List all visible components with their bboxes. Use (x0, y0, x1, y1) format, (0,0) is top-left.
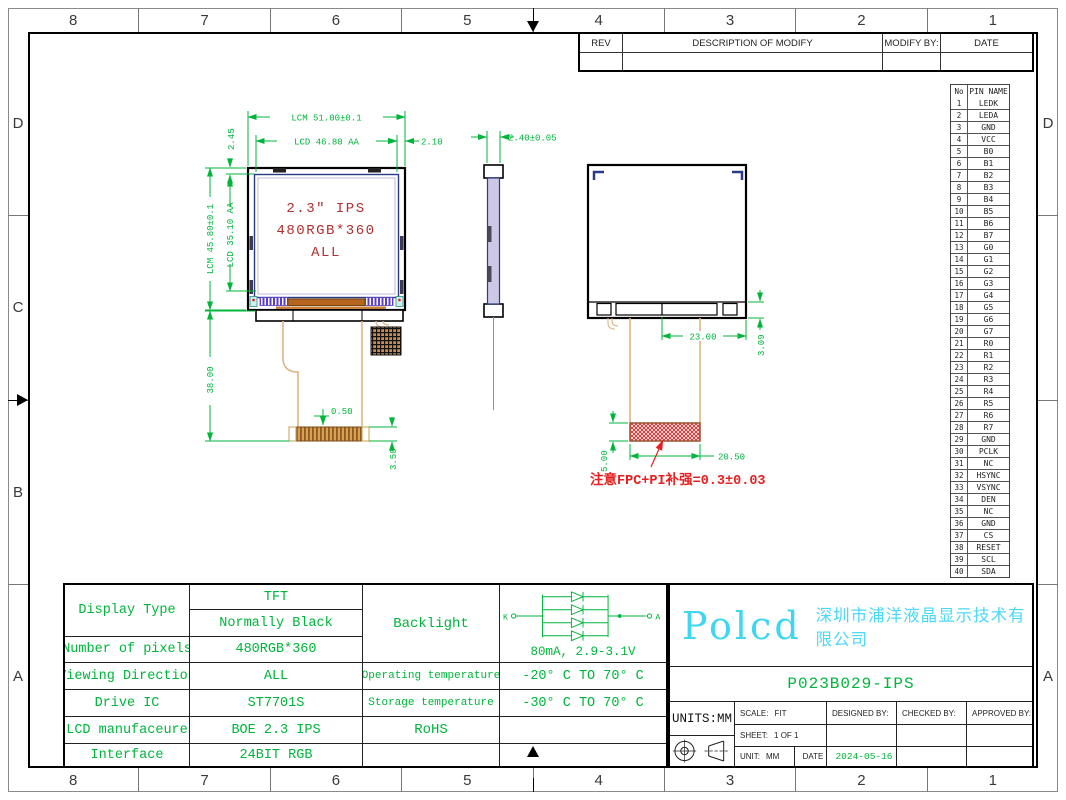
pin-number: 26 (951, 398, 968, 409)
rev-row-cell (883, 53, 941, 70)
pin-number: 32 (951, 470, 968, 481)
checked-by-cell: CHECKED BY: (897, 702, 967, 725)
pin-name: G0 (968, 242, 1009, 253)
pin-name: DEN (968, 494, 1009, 505)
pin-number: 3 (951, 122, 968, 133)
pin-name: R3 (968, 374, 1009, 385)
pin-name: B5 (968, 206, 1009, 217)
pin-table-body: 1LEDK2LEDA3GND4VCC5B06B17B28B39B410B511B… (951, 97, 1009, 577)
pin-number: 35 (951, 506, 968, 517)
rev-row-cell (941, 53, 1032, 70)
pin-name: R5 (968, 398, 1009, 409)
pin-number: 13 (951, 242, 968, 253)
pin-name-header: PIN NAME (968, 85, 1009, 97)
part-number: P023B029-IPS (670, 667, 1032, 702)
approved-by-cell: APPROVED BY: (967, 702, 1032, 725)
pin-name: NC (968, 506, 1009, 517)
pin-row: 8B3 (951, 181, 1009, 193)
spec-drive-ic-label: Drive IC (65, 690, 190, 717)
spec-rohs-label: RoHS (363, 717, 500, 744)
pin-row: 31NC (951, 457, 1009, 469)
pin-name: G1 (968, 254, 1009, 265)
center-mark-left (17, 394, 28, 406)
pin-row: 11B6 (951, 217, 1009, 229)
zone-col-7: 7 (138, 768, 269, 792)
pin-number: 4 (951, 134, 968, 145)
company-logo: Polcd (682, 604, 802, 648)
zone-col-5: 5 (401, 768, 532, 792)
date-value-cell: 2024-05-16 (827, 747, 897, 766)
pin-row: 6B1 (951, 157, 1009, 169)
pin-name: G4 (968, 290, 1009, 301)
pin-number: 24 (951, 374, 968, 385)
pin-number: 25 (951, 386, 968, 397)
center-mark-top-line (533, 8, 534, 22)
backlight-a-terminal: A (655, 613, 660, 622)
pin-row: 39SCL (951, 553, 1009, 565)
pin-row: 24R3 (951, 373, 1009, 385)
pin-row: 10B5 (951, 205, 1009, 217)
sheet-label: SHEET: (740, 731, 768, 740)
pin-number: 19 (951, 314, 968, 325)
pin-number: 37 (951, 530, 968, 541)
pin-row: 19G6 (951, 313, 1009, 325)
pin-number: 15 (951, 266, 968, 277)
pin-row: 34DEN (951, 493, 1009, 505)
pin-name: LEDA (968, 110, 1009, 121)
spec-viewing-label: Viewing Direction (65, 663, 190, 690)
pin-name: R7 (968, 422, 1009, 433)
spec-manufacturer-value: BOE 2.3 IPS (190, 717, 363, 744)
scale-label: SCALE: (740, 709, 768, 718)
pin-row: 2LEDA (951, 109, 1009, 121)
zone-strip-right: DA (1038, 32, 1058, 768)
spec-manufacturer-label: LCD manufaceure (65, 717, 190, 744)
spec-interface-value: 24BIT RGB (190, 744, 363, 766)
pin-number: 2 (951, 110, 968, 121)
pin-name: GND (968, 122, 1009, 133)
spec-display-type-label: Display Type (65, 585, 190, 637)
pin-name: G6 (968, 314, 1009, 325)
pin-name: RESET (968, 542, 1009, 553)
pin-name: G2 (968, 266, 1009, 277)
spec-drive-ic-value: ST7701S (190, 690, 363, 717)
pin-row: 17G4 (951, 289, 1009, 301)
zone-row-b: B (8, 400, 28, 584)
zone-row-a: A (1038, 584, 1058, 768)
sheet-cell: SHEET: 1 OF 1 (735, 725, 827, 747)
pin-name: VCC (968, 134, 1009, 145)
pin-number: 7 (951, 170, 968, 181)
unit-cell: UNIT: MM (735, 747, 795, 766)
zone-col-1: 1 (927, 768, 1058, 792)
pin-row: 16G3 (951, 277, 1009, 289)
pin-number: 38 (951, 542, 968, 553)
pin-name: R6 (968, 410, 1009, 421)
zone-col-6: 6 (270, 8, 401, 32)
pin-number: 8 (951, 182, 968, 193)
pin-no-header: No (951, 85, 968, 97)
pin-name: B2 (968, 170, 1009, 181)
pin-name: R0 (968, 338, 1009, 349)
zone-col-3: 3 (664, 768, 795, 792)
zone-col-7: 7 (138, 8, 269, 32)
rev-header-modify-by: MODIFY BY: (883, 34, 941, 53)
pin-number: 34 (951, 494, 968, 505)
pin-row: 20G7 (951, 325, 1009, 337)
unit-value: MM (766, 752, 779, 761)
pin-name: G5 (968, 302, 1009, 313)
pin-name: SCL (968, 554, 1009, 565)
pin-row: 30PCLK (951, 445, 1009, 457)
pin-row: 36GND (951, 517, 1009, 529)
zone-col-1: 1 (927, 8, 1058, 32)
zone-row-d: D (1038, 32, 1058, 215)
pin-number: 36 (951, 518, 968, 529)
pin-number: 18 (951, 302, 968, 313)
spec-op-temp-label: Operating temperature (363, 663, 500, 690)
pin-row: 13G0 (951, 241, 1009, 253)
scale-cell: SCALE: FIT (735, 702, 827, 725)
spec-st-temp-label: Storage temperature (363, 690, 500, 717)
rev-row-cell (580, 53, 623, 70)
spec-viewing-value: ALL (190, 663, 363, 690)
zone-row (1038, 215, 1058, 399)
backlight-k-terminal: K (503, 613, 508, 622)
logo-row: Polcd 深圳市浦洋液晶显示技术有限公司 (670, 585, 1032, 667)
pin-name: R2 (968, 362, 1009, 373)
zone-row-d: D (8, 32, 28, 215)
pin-row: 21R0 (951, 337, 1009, 349)
pin-number: 6 (951, 158, 968, 169)
zone-col-3: 3 (664, 8, 795, 32)
pin-name: LEDK (968, 97, 1009, 109)
pin-row: 5B0 (951, 145, 1009, 157)
spec-backlight-label: Backlight (363, 585, 500, 663)
units-cell: UNITS:MM (670, 702, 735, 736)
unit-label: UNIT: (740, 752, 760, 761)
spec-pixels-label: Number of pixels (65, 637, 190, 663)
pin-name: CS (968, 530, 1009, 541)
backlight-circuit: K A (502, 588, 664, 644)
pin-name: NC (968, 458, 1009, 469)
pin-number: 31 (951, 458, 968, 469)
pin-name: HSYNC (968, 470, 1009, 481)
spec-op-temp-value: -20° C TO 70° C (500, 663, 666, 690)
pin-name: PCLK (968, 446, 1009, 457)
pin-number: 12 (951, 230, 968, 241)
pin-name: R4 (968, 386, 1009, 397)
rev-row-cell (623, 53, 883, 70)
spec-rohs-value (500, 717, 666, 744)
rev-header-description: DESCRIPTION OF MODIFY (623, 34, 883, 53)
pin-name: G3 (968, 278, 1009, 289)
pin-row: 29GND (951, 433, 1009, 445)
pin-row: 26R5 (951, 397, 1009, 409)
zone-row-c: C (8, 215, 28, 399)
pin-row: 35NC (951, 505, 1009, 517)
pin-number: 5 (951, 146, 968, 157)
backlight-rating: 80mA, 2.9-3.1V (530, 645, 635, 659)
sheet-value: 1 OF 1 (774, 731, 798, 740)
pin-row: 12B7 (951, 229, 1009, 241)
date-label-cell: DATE (795, 747, 827, 766)
zone-col-4: 4 (533, 768, 664, 792)
pin-row: 27R6 (951, 409, 1009, 421)
pin-number: 10 (951, 206, 968, 217)
scale-value: FIT (774, 709, 786, 718)
pin-number: 33 (951, 482, 968, 493)
pin-number: 22 (951, 350, 968, 361)
pin-row: 22R1 (951, 349, 1009, 361)
rev-header-rev: REV (580, 34, 623, 53)
pin-name: GND (968, 518, 1009, 529)
zone-col-5: 5 (401, 8, 532, 32)
pin-table-header: No PIN NAME (951, 85, 1009, 97)
pin-number: 29 (951, 434, 968, 445)
pin-number: 11 (951, 218, 968, 229)
pin-name: VSYNC (968, 482, 1009, 493)
zone-row-a: A (8, 584, 28, 768)
pin-name: SDA (968, 566, 1009, 577)
pin-name: B0 (968, 146, 1009, 157)
spec-display-type-value2: Normally Black (190, 610, 363, 637)
pin-name: B4 (968, 194, 1009, 205)
pin-name: B6 (968, 218, 1009, 229)
pin-number: 30 (951, 446, 968, 457)
zone-col-2: 2 (795, 8, 926, 32)
pin-row: 23R2 (951, 361, 1009, 373)
pin-name: GND (968, 434, 1009, 445)
pin-number: 28 (951, 422, 968, 433)
pin-row: 14G1 (951, 253, 1009, 265)
pin-number: 1 (951, 97, 968, 109)
center-mark-top (527, 21, 539, 32)
pin-row: 1LEDK (951, 97, 1009, 109)
revision-table: REV DESCRIPTION OF MODIFY MODIFY BY: DAT… (578, 32, 1034, 72)
title-block: Polcd 深圳市浦洋液晶显示技术有限公司 P023B029-IPS UNITS… (668, 583, 1034, 768)
center-mark-left-line (8, 400, 18, 401)
pin-table: No PIN NAME 1LEDK2LEDA3GND4VCC5B06B17B28… (950, 84, 1010, 578)
pin-number: 17 (951, 290, 968, 301)
pin-number: 39 (951, 554, 968, 565)
pin-row: 3GND (951, 121, 1009, 133)
company-name: 深圳市浦洋液晶显示技术有限公司 (816, 602, 1032, 650)
spec-display-type-value1: TFT (190, 585, 363, 610)
zone-col-2: 2 (795, 768, 926, 792)
projection-symbol (670, 736, 735, 766)
pin-row: 40SDA (951, 565, 1009, 577)
spec-backlight-value: K A 80mA, 2.9-3.1V (500, 585, 666, 663)
pin-name: B1 (968, 158, 1009, 169)
zone-row (1038, 400, 1058, 584)
zone-col-4: 4 (533, 8, 664, 32)
pin-name: R1 (968, 350, 1009, 361)
pin-row: 15G2 (951, 265, 1009, 277)
spec-interface-label: Interface (65, 744, 190, 766)
pin-number: 23 (951, 362, 968, 373)
pin-name: G7 (968, 326, 1009, 337)
spec-st-temp-value: -30° C TO 70° C (500, 690, 666, 717)
pin-row: 25R4 (951, 385, 1009, 397)
pin-row: 4VCC (951, 133, 1009, 145)
pin-number: 21 (951, 338, 968, 349)
pin-name: B7 (968, 230, 1009, 241)
zone-col-8: 8 (8, 768, 138, 792)
pin-row: 38RESET (951, 541, 1009, 553)
drawing-sheet: 87654321 87654321 DCBA DA REV DESCRIPTIO… (0, 0, 1066, 800)
pin-name: B3 (968, 182, 1009, 193)
rev-header-date: DATE (941, 34, 1032, 53)
pin-row: 28R7 (951, 421, 1009, 433)
pin-row: 37CS (951, 529, 1009, 541)
pin-row: 18G5 (951, 301, 1009, 313)
zone-col-6: 6 (270, 768, 401, 792)
center-mark-bottom-line (533, 778, 534, 792)
pin-number: 16 (951, 278, 968, 289)
zone-col-8: 8 (8, 8, 138, 32)
spec-table: Display Type TFT Backlight (63, 583, 668, 768)
spec-pixels-value: 480RGB*360 (190, 637, 363, 663)
pin-number: 9 (951, 194, 968, 205)
designed-by-cell: DESIGNED BY: (827, 702, 897, 725)
pin-number: 20 (951, 326, 968, 337)
pin-row: 7B2 (951, 169, 1009, 181)
pin-number: 27 (951, 410, 968, 421)
pin-row: 32HSYNC (951, 469, 1009, 481)
pin-number: 14 (951, 254, 968, 265)
pin-row: 9B4 (951, 193, 1009, 205)
pin-number: 40 (951, 566, 968, 577)
pin-row: 33VSYNC (951, 481, 1009, 493)
